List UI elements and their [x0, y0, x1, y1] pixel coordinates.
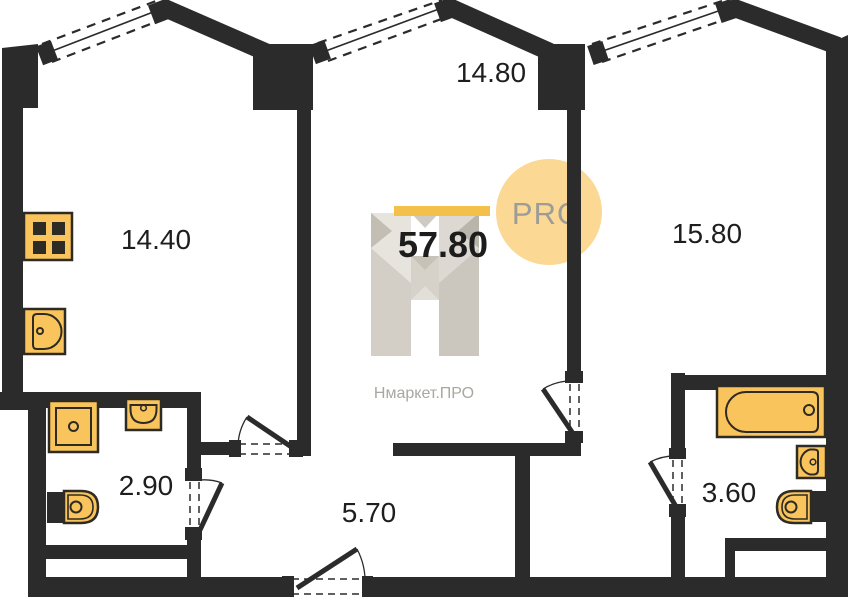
room-area-label: 5.70: [342, 497, 397, 528]
wall-left-lower: [28, 402, 46, 594]
door-swing-icon: [650, 456, 682, 510]
window-icon: [318, 0, 452, 61]
kitchen-sink-icon: [24, 309, 65, 354]
room-area-label: 3.60: [702, 477, 757, 508]
washbasin-icon: [126, 399, 161, 430]
total-area-label: 57.80: [398, 224, 488, 265]
room-area-label: 14.80: [456, 57, 526, 88]
toilet-icon: [47, 491, 98, 523]
wall-bay-band-3: [729, 6, 838, 46]
wall-pillar-2: [538, 44, 585, 110]
wall-bath-left-side-upper: [187, 392, 201, 470]
door-swing-icon: [190, 480, 222, 530]
wall-divider-right: [567, 106, 581, 375]
wall-bay-band-2: [447, 6, 550, 52]
wall-niche-stub: [725, 538, 735, 578]
wall-divider-left: [297, 106, 311, 456]
wall-hall-vertical: [515, 443, 530, 577]
wall-bath-right-side-lower: [671, 517, 685, 577]
doors: [190, 381, 682, 594]
wall-niche-top: [735, 538, 848, 551]
door-swing-icon: [238, 417, 293, 454]
wall-right: [826, 35, 848, 597]
jamb-d4-a: [669, 448, 686, 459]
entrance-door-swing-icon: [292, 549, 365, 594]
wall-left-top: [2, 44, 38, 108]
wall-bath-right-side-upper: [671, 373, 685, 450]
room-area-label: 2.90: [119, 470, 174, 501]
windows: [42, 0, 732, 62]
watermark-text: Нмаркет.ПРО: [374, 385, 474, 402]
floorplan-svg: PRO Нмаркет.ПРО: [0, 0, 851, 600]
floorplan-canvas: PRO Нмаркет.ПРО: [0, 0, 851, 600]
wall-hall-top-right: [393, 443, 581, 456]
window-icon: [592, 1, 732, 62]
washbasin-icon: [797, 446, 826, 478]
wall-bath-left-top: [0, 392, 201, 408]
bathtub-icon: [717, 386, 825, 437]
window-icon: [42, 1, 166, 62]
door-swing-icon: [543, 381, 579, 435]
stove-icon: [16, 213, 72, 260]
logo-accent-bar: [394, 206, 490, 216]
toilet-icon: [777, 491, 827, 523]
shower-icon: [49, 401, 98, 452]
wall-pillar-1: [253, 44, 313, 110]
jamb-d2-a: [185, 468, 202, 481]
jamb-d5-b: [362, 576, 373, 597]
room-area-label: 14.40: [121, 224, 191, 255]
room-area-label: 15.80: [672, 218, 742, 249]
wall-bath-left-bottom: [28, 545, 201, 559]
wall-bottom-left: [28, 577, 290, 597]
wall-bottom-right: [365, 577, 848, 597]
